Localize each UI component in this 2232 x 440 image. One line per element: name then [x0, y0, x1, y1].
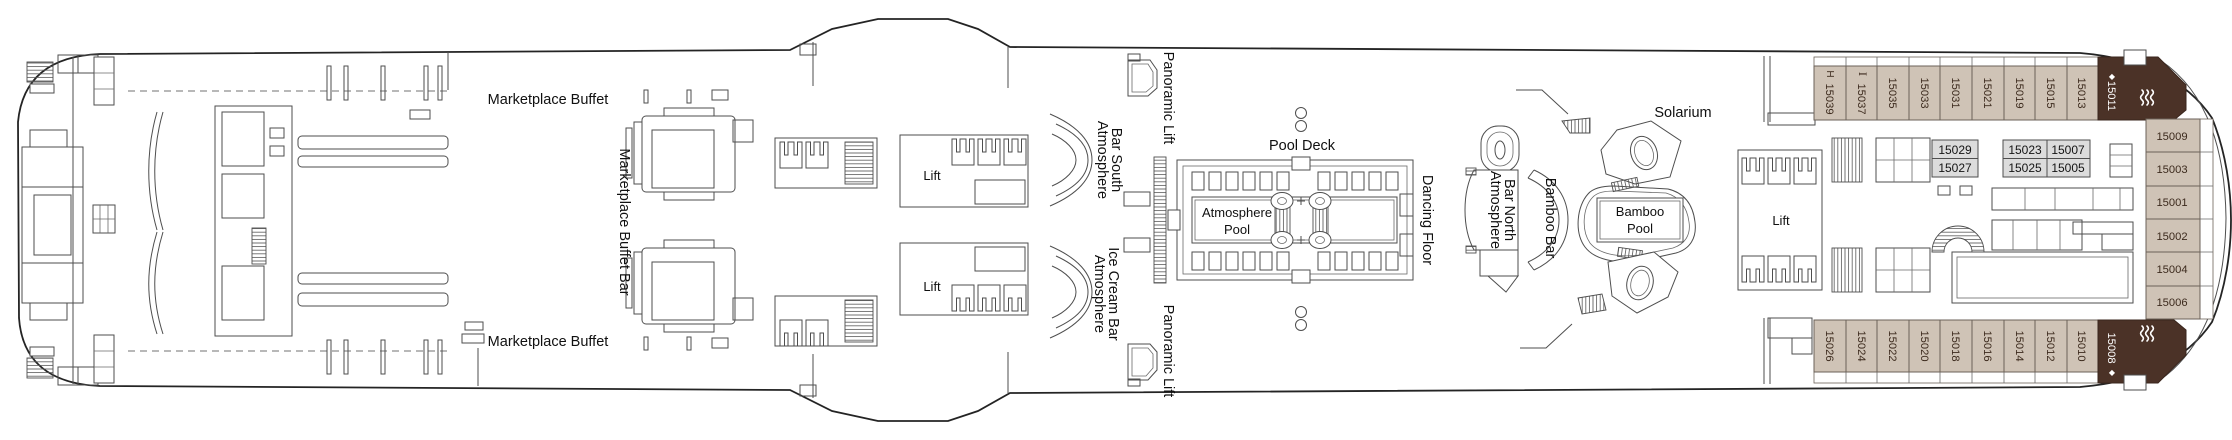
- pool-gate: [1292, 157, 1310, 170]
- bar-hatch: [1466, 246, 1476, 253]
- diamond-icon: ◆: [2109, 72, 2116, 81]
- pool-ladder: [1271, 193, 1293, 210]
- panoramic-lift-top-label: Panoramic Lift: [1160, 52, 1176, 145]
- deck-notch: [2124, 375, 2146, 390]
- stairs-icon: [845, 142, 873, 184]
- elevator-icon: [1742, 256, 1764, 282]
- cabin-number: 15023: [2008, 143, 2042, 157]
- locker-strip: [94, 335, 114, 383]
- panoramic-lift-bottom-label: Panoramic Lift: [1160, 305, 1176, 398]
- atmosphere-bar-south-label-line1: Atmosphere: [1094, 121, 1110, 199]
- atmosphere-ice-cream-bar-label-line2: Ice Cream Bar: [1105, 247, 1121, 341]
- stairs-icon: [27, 358, 53, 378]
- elevator-icon: [1768, 158, 1790, 184]
- pool-ladder: [1309, 232, 1331, 249]
- cabin-number: 15035: [1886, 77, 1898, 108]
- bar-hatch: [1466, 168, 1476, 175]
- cabin-number: 15006: [2156, 297, 2187, 309]
- cabin-number: 15024: [1855, 330, 1867, 361]
- accessible-symbol: H: [1824, 70, 1835, 77]
- pool-steps: [1275, 206, 1290, 234]
- cabin-number: 15021: [1981, 77, 1993, 108]
- atmosphere-bar-north-label-line2: Bar North: [1501, 179, 1517, 241]
- cabin-number: 15031: [1949, 77, 1961, 108]
- cabin-number: 15018: [1949, 330, 1961, 361]
- elevator-icon: [978, 285, 1000, 311]
- cabin-number: 15037: [1855, 83, 1867, 114]
- sofa-bed-symbol: I: [1856, 72, 1868, 76]
- dancing-floor-label: Dancing Floor: [1419, 175, 1435, 265]
- cabin-number: 15020: [1918, 330, 1930, 361]
- stairs-icon: [27, 62, 53, 82]
- elevator-icon: [806, 320, 828, 346]
- marketplace-buffet-top-label: Marketplace Buffet: [488, 92, 609, 108]
- deck-plan-drawing: Lift Lift Atmosphere Bar South Atmospher…: [0, 0, 2232, 440]
- cabin-number: 15039: [1823, 83, 1835, 114]
- atmosphere-pool-label-line1: Atmosphere: [1202, 205, 1272, 220]
- elevator-icon: [1742, 158, 1764, 184]
- marketplace-buffet-bar-label: Marketplace Buffet Bar: [616, 148, 632, 295]
- lift-label: Lift: [923, 279, 941, 294]
- balcony-strip: [1814, 372, 2098, 383]
- cabin-number: 15022: [1886, 330, 1898, 361]
- atmosphere-pool-basin: [1192, 197, 1397, 243]
- bamboo-pool-label-line2: Pool: [1627, 221, 1653, 236]
- elevator-icon: [780, 142, 802, 168]
- cabin-number: 15005: [2051, 161, 2085, 175]
- elevator-icon: [952, 139, 974, 165]
- bamboo-bar-label: Bamboo Bar: [1542, 178, 1558, 259]
- elevator-icon: [1794, 158, 1816, 184]
- atmosphere-pool-label-line2: Pool: [1224, 222, 1250, 237]
- elevator-icon: [780, 320, 802, 346]
- cabin-number: 15027: [1938, 161, 1972, 175]
- cabin-number: 15033: [1918, 77, 1930, 108]
- atmosphere-ice-cream-bar-label-line1: Atmosphere: [1091, 255, 1107, 333]
- stairs-icon: [1578, 294, 1606, 314]
- atmosphere-bar-north-label-line1: Atmosphere: [1487, 171, 1503, 249]
- stairs-icon: [1832, 138, 1862, 182]
- cabin-number: 15004: [2156, 264, 2187, 276]
- seat-row: [30, 84, 54, 93]
- pool-ladder: [1309, 193, 1331, 210]
- elevator-icon: [1794, 256, 1816, 282]
- cabin-number: 15002: [2156, 231, 2187, 243]
- elevator-icon: [1004, 285, 1026, 311]
- pool-gate: [1292, 270, 1310, 283]
- pool-ladder: [1271, 232, 1293, 249]
- cabin-number: 15014: [2013, 330, 2025, 361]
- locker-strip: [94, 57, 114, 105]
- cabin-number: 15007: [2051, 143, 2085, 157]
- lift-label: Lift: [1772, 213, 1790, 228]
- marketplace-buffet-bottom-label: Marketplace Buffet: [488, 334, 609, 350]
- deck-notch: [2124, 50, 2146, 65]
- stairs-icon: [252, 228, 266, 264]
- lift-label: Lift: [923, 168, 941, 183]
- elevator-icon: [952, 285, 974, 311]
- service-strip: [2110, 144, 2132, 177]
- cabin-number: 15016: [1981, 330, 1993, 361]
- pool-gate: [1168, 210, 1180, 230]
- balcony-strip: [1814, 57, 2098, 66]
- bamboo-pool-label-line1: Bamboo: [1616, 204, 1664, 219]
- cabin-number: 15012: [2044, 330, 2056, 361]
- stairs-icon: [845, 300, 873, 342]
- elevator-icon: [978, 139, 1000, 165]
- elevator-icon: [1768, 256, 1790, 282]
- cabin-number: 15001: [2156, 197, 2187, 209]
- pool-deck-label: Pool Deck: [1269, 138, 1336, 154]
- stairs-icon: [1832, 248, 1862, 292]
- cabin-number: 15013: [2075, 77, 2087, 108]
- cabin-number: 15025: [2008, 161, 2042, 175]
- elevator-icon: [1004, 139, 1026, 165]
- diamond-icon: ◆: [2109, 368, 2116, 377]
- cabin-number: 15029: [1938, 143, 1972, 157]
- solarium-label: Solarium: [1654, 105, 1711, 121]
- cabin-number: 15009: [2156, 131, 2187, 143]
- cabin-number: 15019: [2013, 77, 2025, 108]
- stairs-icon: [1154, 157, 1166, 283]
- cabin-number: 15015: [2044, 77, 2056, 108]
- cabin-number: 15011: [2105, 81, 2117, 111]
- elevator-icon: [806, 142, 828, 168]
- cabin-number: 15010: [2075, 330, 2087, 361]
- cabin-number: 15003: [2156, 164, 2187, 176]
- deck-plan: Lift Lift Atmosphere Bar South Atmospher…: [0, 0, 2232, 440]
- seat-row: [30, 347, 54, 356]
- cabin-number: 15008: [2105, 332, 2117, 363]
- atmosphere-bar-south-label-line2: Bar South: [1108, 128, 1124, 193]
- pool-steps: [1313, 206, 1328, 234]
- cabin-number: 15026: [1823, 330, 1835, 361]
- bar-back-counter: [1480, 250, 1518, 276]
